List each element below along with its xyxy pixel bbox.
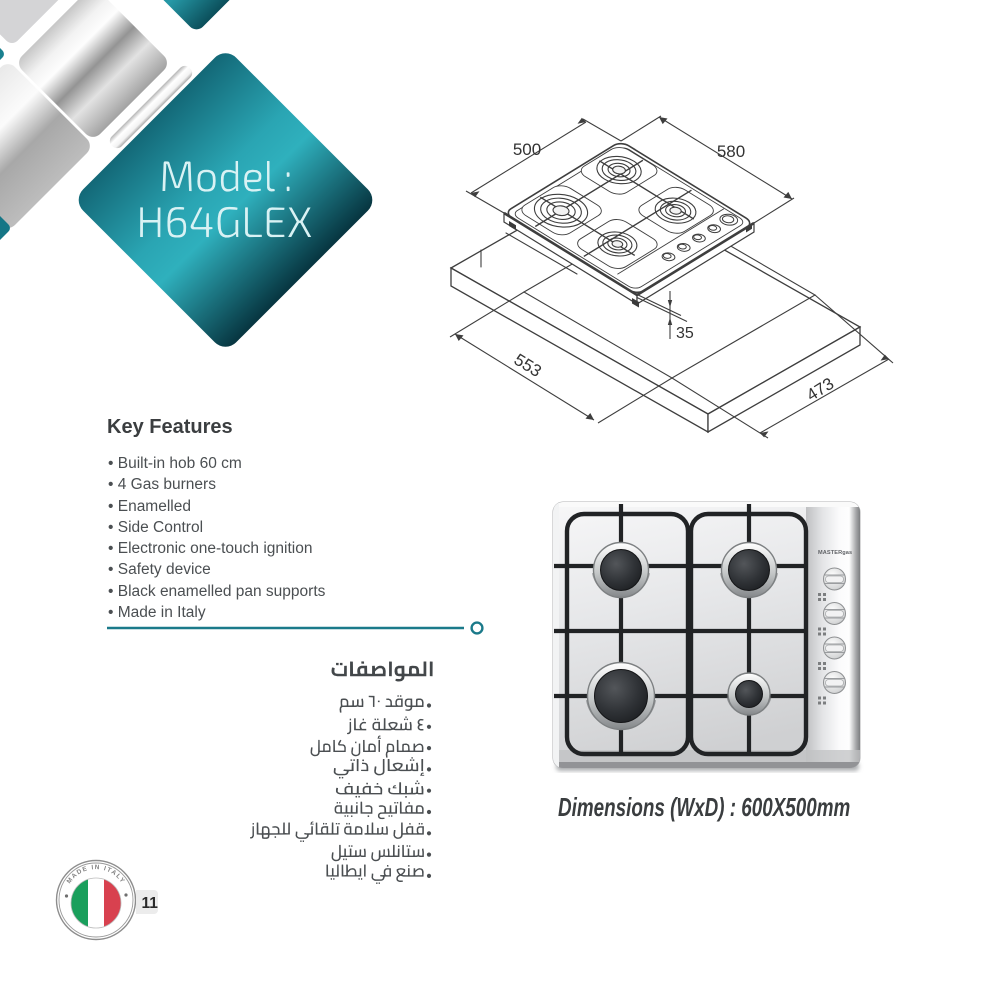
svg-text:11: 11 <box>142 895 159 912</box>
svg-text:MASTERgas: MASTERgas <box>818 550 852 556</box>
svg-text:35: 35 <box>676 325 694 342</box>
svg-text:473: 473 <box>803 374 837 405</box>
svg-text:553: 553 <box>511 350 545 381</box>
svg-text:500: 500 <box>513 140 541 159</box>
svg-text:580: 580 <box>717 142 745 161</box>
